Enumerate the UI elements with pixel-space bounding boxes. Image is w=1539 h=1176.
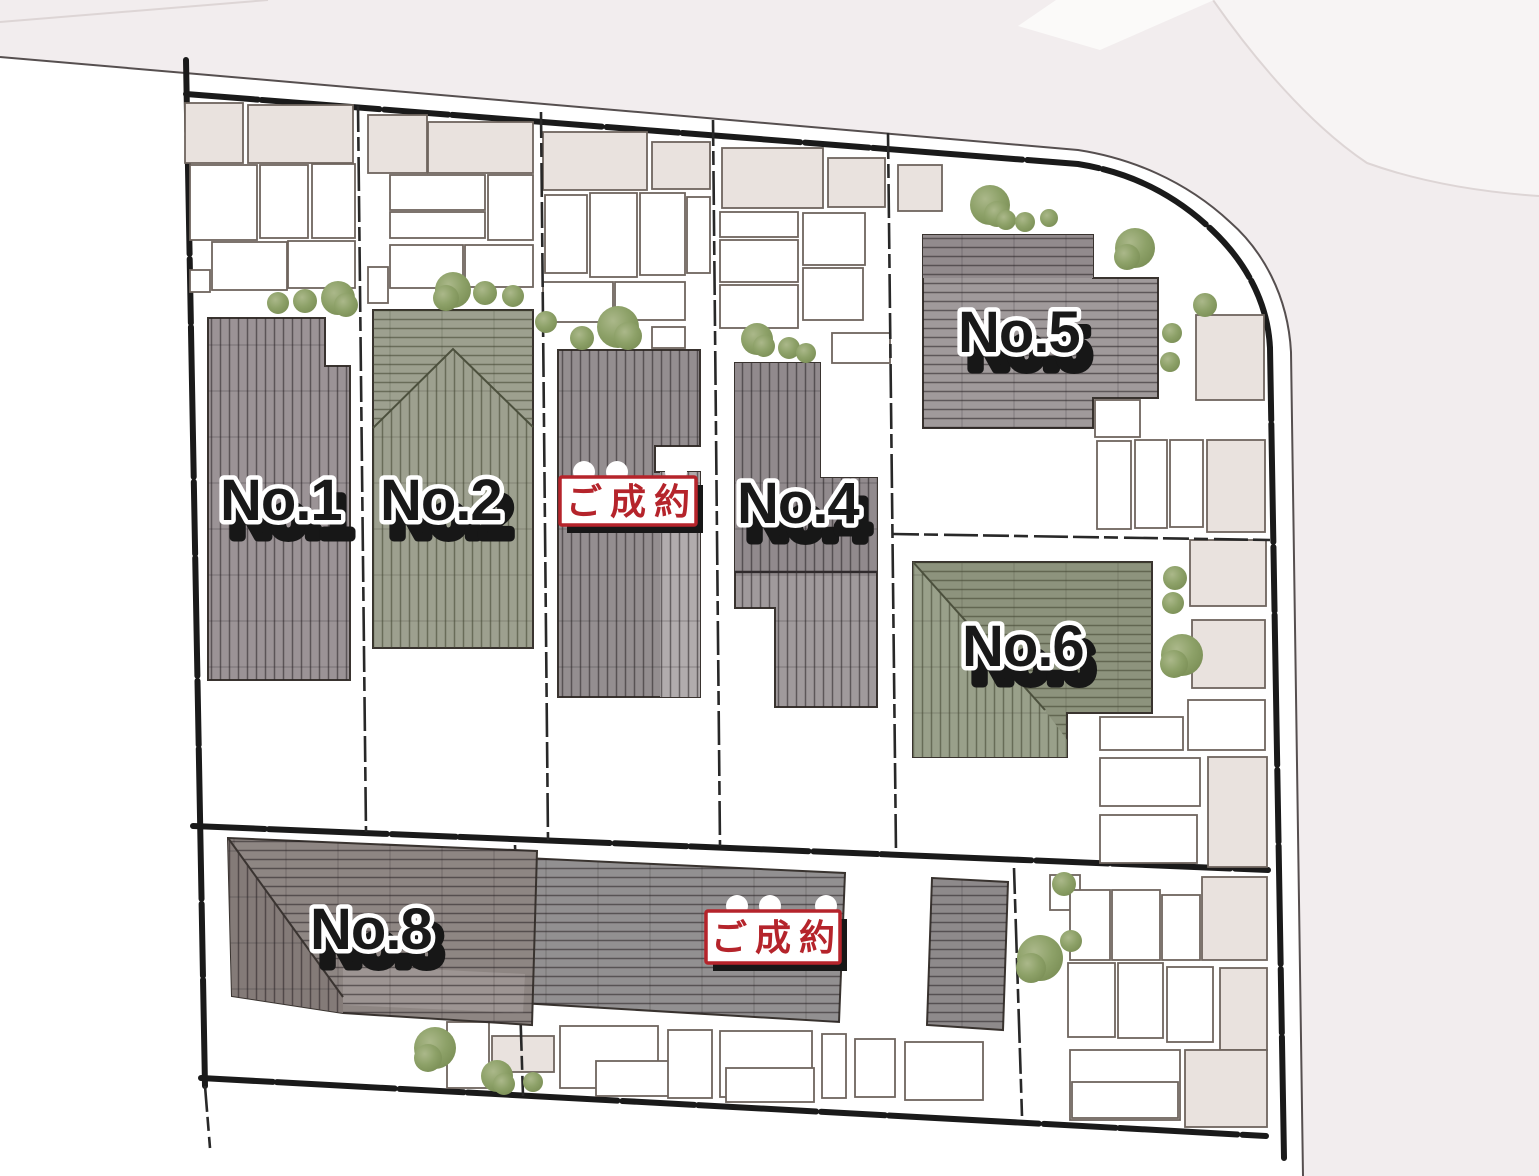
parcel <box>260 165 308 238</box>
lot-label-no1[interactable]: No.1 <box>220 468 342 533</box>
tree <box>523 1072 543 1092</box>
parcel <box>190 270 210 292</box>
parcel <box>545 195 587 273</box>
parcel <box>1118 963 1163 1038</box>
boundary-east <box>1270 348 1284 1158</box>
parcel <box>722 148 823 208</box>
parcel <box>1185 1050 1267 1127</box>
boundary-west-ext <box>205 1086 210 1148</box>
parcel <box>720 285 798 328</box>
site-plan-canvas: No.1 No.1 No.2 No.2 No.4 No.4 No.5 No.5 … <box>0 0 1539 1176</box>
parcel <box>720 240 798 282</box>
parcel <box>1162 895 1200 960</box>
parcel <box>1100 815 1197 863</box>
parcel <box>898 165 942 211</box>
tree <box>1040 209 1058 227</box>
tree <box>1163 566 1187 590</box>
parcel <box>1202 877 1267 960</box>
parcel <box>855 1039 895 1097</box>
parcel <box>652 327 685 348</box>
parcel <box>1188 700 1265 750</box>
parcel <box>652 142 710 189</box>
parcel <box>1072 1082 1178 1118</box>
parcel <box>1208 757 1267 867</box>
lot-divider-3-4 <box>713 120 720 846</box>
parcel <box>190 165 257 240</box>
parcel <box>1095 400 1140 437</box>
parcel <box>1100 717 1183 750</box>
parcel <box>368 115 427 173</box>
sold-badge-text: ご成約 <box>711 918 843 958</box>
parcel <box>1068 963 1115 1037</box>
lot-divider-4-5 <box>888 133 896 852</box>
roof-texture <box>927 878 1008 1030</box>
tree <box>1114 228 1155 270</box>
parcel <box>687 197 710 273</box>
parcel <box>905 1042 983 1100</box>
site-plan: No.1 No.1 No.2 No.2 No.4 No.4 No.5 No.5 … <box>0 0 1539 1176</box>
parcel <box>1170 440 1203 527</box>
lot-divider-7-east <box>1014 868 1022 1116</box>
parcel <box>465 245 533 287</box>
parcel <box>668 1030 712 1098</box>
tree <box>535 311 557 333</box>
lot-divider-1-2 <box>358 106 366 832</box>
tree <box>1193 293 1217 317</box>
parcel <box>428 122 533 173</box>
parcel <box>368 267 388 303</box>
lot-label-no2[interactable]: No.2 <box>380 468 502 533</box>
tree <box>1060 930 1082 952</box>
parcel <box>543 132 647 190</box>
parcel <box>488 175 533 240</box>
parcel <box>1220 968 1267 1050</box>
parcel <box>640 193 685 275</box>
parcel <box>390 175 485 210</box>
tree <box>502 285 524 307</box>
tree <box>996 210 1016 230</box>
tree <box>293 289 317 313</box>
parcel <box>1100 758 1200 806</box>
parcel <box>288 241 355 288</box>
lot-label-no5[interactable]: No.5 <box>958 300 1080 365</box>
parcel <box>1135 440 1167 528</box>
parcel <box>1112 890 1160 960</box>
parcel <box>248 105 353 163</box>
lot-label-no8[interactable]: No.8 <box>310 897 432 962</box>
tree <box>1160 352 1180 372</box>
parcel <box>822 1034 846 1098</box>
tree <box>1162 592 1184 614</box>
lot-label-no6[interactable]: No.6 <box>962 614 1084 679</box>
tree <box>1162 323 1182 343</box>
parcel <box>828 158 885 207</box>
lot-divider-5-6 <box>893 534 1270 540</box>
parcel <box>726 1068 814 1102</box>
parcel <box>803 268 863 320</box>
parcel <box>590 193 637 277</box>
tree <box>473 281 497 305</box>
tree <box>1052 872 1076 896</box>
tree <box>796 343 816 363</box>
parcel <box>1097 441 1131 529</box>
parcel <box>720 212 798 237</box>
parcel <box>312 164 355 238</box>
parcel <box>390 212 485 238</box>
tree <box>1015 212 1035 232</box>
parcel <box>1196 315 1264 400</box>
parcel <box>185 103 243 163</box>
tree <box>1016 935 1063 983</box>
parcel <box>803 213 865 265</box>
tree <box>267 292 289 314</box>
parcel <box>1207 440 1265 532</box>
parcel <box>832 333 890 363</box>
sold-badge-text: ご成約 <box>566 482 698 522</box>
sold-badge-lot7: ご成約 <box>706 895 847 971</box>
lot-label-no4[interactable]: No.4 <box>737 471 859 536</box>
parcel <box>1190 540 1266 606</box>
parcel <box>212 242 287 290</box>
parcel <box>1167 967 1213 1042</box>
tree <box>570 326 594 350</box>
